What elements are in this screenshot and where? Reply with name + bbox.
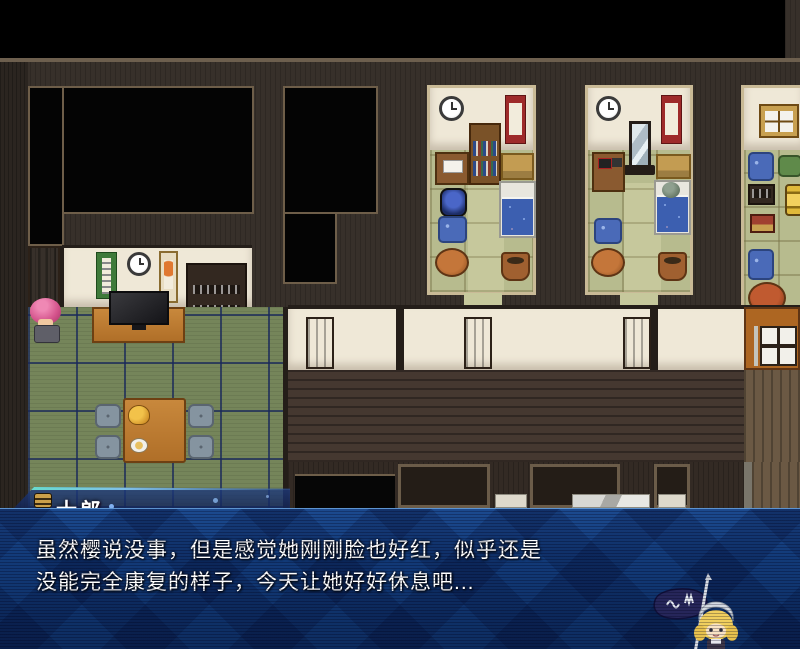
lower-sill-1 (495, 494, 527, 508)
duck-ornament (128, 405, 150, 425)
bedroom-a (427, 85, 536, 295)
roof-seam (0, 58, 800, 62)
lower-right-wall (752, 462, 800, 508)
floor-cushion-4 (188, 435, 214, 459)
lower-pillar (744, 462, 752, 508)
hallway-floor (288, 370, 800, 462)
lower-door-1 (398, 464, 490, 508)
lower-sill-3 (658, 494, 686, 508)
shelf-c (748, 184, 775, 205)
mirror-base (624, 165, 655, 175)
tv-stand (132, 325, 146, 330)
desk-b (592, 152, 625, 192)
chibi-flag-bearer-sprite (648, 573, 768, 649)
entry-floor (744, 370, 800, 462)
standing-mirror (629, 121, 651, 171)
dresser-a (501, 153, 534, 180)
cushion-c1 (748, 152, 774, 181)
dark-room-middle-lower (283, 212, 337, 284)
lantern-c (785, 184, 800, 216)
dialog-box[interactable]: 虽然樱说没事，但是感觉她刚刚脸也好红，似乎还是 没能完全康复的样子，今天让她好好… (0, 508, 800, 649)
wall-post-4 (650, 309, 658, 370)
dresser-b (656, 154, 691, 179)
sleeping-character (662, 182, 680, 198)
game-viewport[interactable]: 士郎 虽然樱说没事，但是感觉她刚刚脸也好红，似乎还是 没能完全康复的样子，今天让… (0, 0, 800, 649)
dark-room-left-lower (28, 86, 64, 246)
tv (109, 291, 169, 325)
wall-post-3 (396, 309, 404, 370)
hall-door-3 (623, 317, 651, 369)
hallway-south-wall (288, 309, 800, 370)
floor-cushion-3 (95, 435, 121, 459)
floor-cushion-1 (95, 404, 121, 428)
floor-cushion-2 (188, 404, 214, 428)
round-table-a (435, 248, 469, 277)
bedroom-b (585, 85, 693, 295)
office-chair-a (440, 188, 467, 217)
shoji-entrance (744, 307, 800, 370)
potted-plant-b (658, 252, 687, 281)
banner-ornament-icon (34, 493, 52, 508)
lower-opening (295, 474, 395, 510)
hanging-scroll-a (505, 95, 526, 144)
round-table-b (591, 248, 625, 277)
bed-a (499, 181, 536, 238)
cushion-c2 (778, 155, 800, 177)
hall-door-1 (306, 317, 334, 369)
living-room-clock (127, 252, 151, 276)
cushion-a (438, 216, 467, 243)
lower-sill-2 (572, 494, 650, 508)
player-character (30, 298, 62, 343)
desk-a (435, 152, 469, 185)
bedroom-c (741, 85, 800, 313)
cushion-b (594, 218, 622, 244)
red-chest-c (750, 214, 775, 233)
window-c (759, 104, 799, 138)
cushion-c3 (748, 249, 774, 280)
dialog-text: 虽然樱说没事，但是感觉她刚刚脸也好红，似乎还是 没能完全康复的样子，今天让她好好… (36, 535, 542, 599)
hanging-scroll-b (661, 95, 682, 144)
bookshelf-a (469, 123, 501, 185)
hall-door-2 (464, 317, 492, 369)
wall-clock-a (439, 96, 464, 121)
wall-clock-b (596, 96, 621, 121)
dialog-line-2: 没能完全康复的样子，今天让她好好休息吧... (36, 567, 542, 599)
dark-room-middle (283, 86, 378, 214)
potted-plant-a (501, 252, 530, 281)
tea-plate (130, 438, 148, 453)
dialog-line-1: 虽然樱说没事，但是感觉她刚刚脸也好红，似乎还是 (36, 535, 542, 567)
dark-ceiling (0, 0, 785, 58)
